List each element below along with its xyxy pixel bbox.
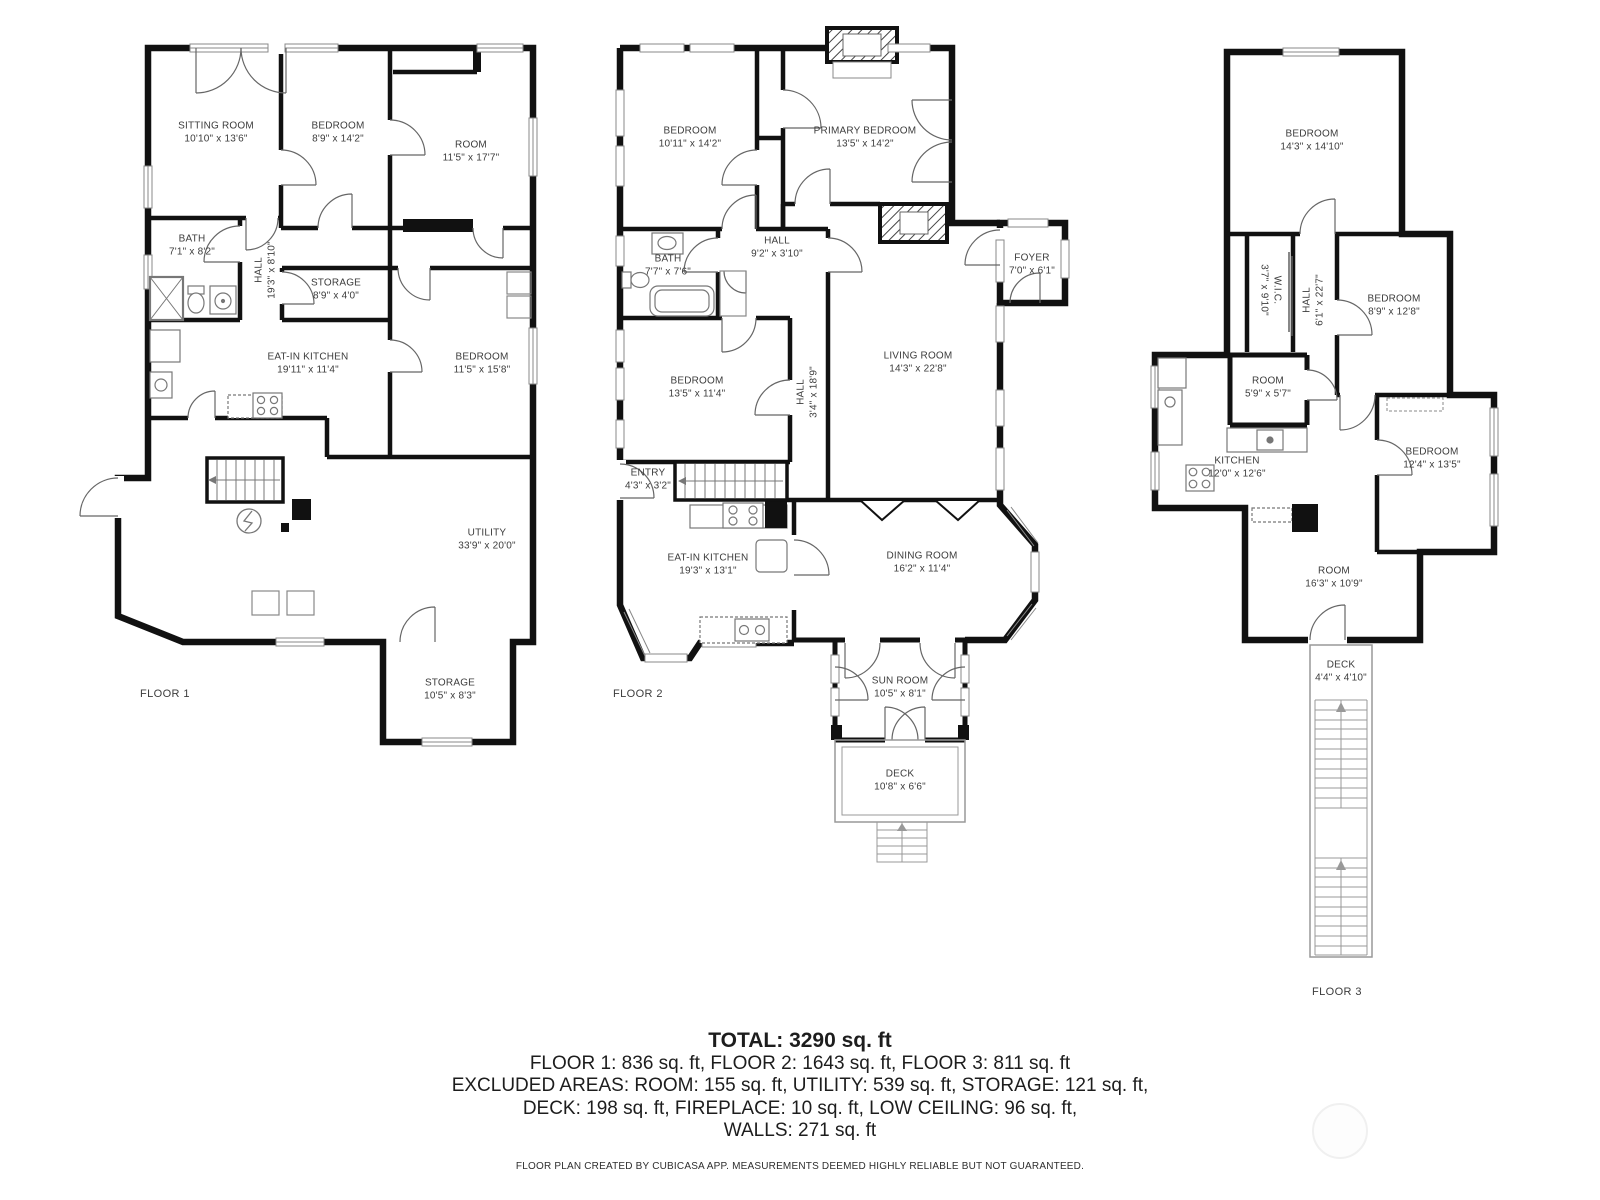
room-label-f3-bedroom-top: BEDROOM14'3" x 14'10" [1280,129,1343,154]
room-label-f1-bath: BATH7'1" x 8'2" [169,234,215,259]
floor-plan-canvas [0,0,1600,1200]
room-label-f2-eat-in-kitchen: EAT-IN KITCHEN19'3" x 13'1" [668,553,749,578]
room-label-f1-storage: STORAGE8'9" x 4'0" [311,278,361,303]
room-label-f3-room: ROOM16'3" x 10'9" [1305,566,1362,591]
disclaimer-text: FLOOR PLAN CREATED BY CUBICASA APP. MEAS… [0,1161,1600,1172]
room-label-living-room: LIVING ROOM14'3" x 22'8" [884,351,953,376]
floor-1-bath-fixtures [150,277,236,320]
floor-2-label: FLOOR 2 [613,688,663,700]
room-label-f3-small-room: ROOM5'9" x 5'7" [1245,376,1291,401]
room-label-sitting-room: SITTING ROOM10'10" x 13'6" [178,121,254,146]
floor-2-bay-seats [860,500,980,520]
room-label-f1-eat-in-kitchen: EAT-IN KITCHEN19'11" x 11'4" [268,352,349,377]
fireplace-hatch [880,204,947,242]
room-label-f1-storage-annex: STORAGE10'5" x 8'3" [424,678,476,703]
room-label-f1-bedroom-top: BEDROOM8'9" x 14'2" [311,121,364,146]
room-label-f3-bedroom-south: BEDROOM12'4" x 13'5" [1403,447,1460,472]
toilet-icon [622,272,631,288]
room-label-f2-deck: DECK10'8" x 6'6" [874,769,926,794]
stove-icon [253,393,282,418]
stove-icon [723,503,763,528]
room-label-f1-hall: HALL19'3" x 8'10" [254,241,279,298]
floor-1-label: FLOOR 1 [140,688,190,700]
room-label-wic: W.I.C.3'7" x 9'10" [1258,264,1283,316]
walls-area-line: WALLS: 271 sq. ft [0,1120,1600,1142]
room-label-dining-room: DINING ROOM16'2" x 11'4" [886,551,957,576]
room-label-f1-room: ROOM11'5" x 17'7" [443,140,500,165]
floor-2-stairs-icon [675,462,787,500]
excluded-areas-line-1: EXCLUDED AREAS: ROOM: 155 sq. ft, UTILIT… [0,1075,1600,1097]
room-label-f2-hall-vertical: HALL3'4" x 18'9" [796,366,821,418]
floor-2-deck [835,740,965,862]
floor-1-door-arcs [80,48,503,642]
floor-3-deck-stairs [1310,645,1372,957]
area-summary: TOTAL: 3290 sq. ft FLOOR 1: 836 sq. ft, … [0,1029,1600,1143]
fridge-icon [1158,358,1186,388]
room-label-f2-hall: HALL9'2" x 3'10" [751,236,803,261]
deck-stairs-icon [1315,700,1367,955]
room-label-entry: ENTRY4'3" x 3'2" [625,468,671,493]
room-label-foyer: FOYER7'0" x 6'1" [1009,253,1055,278]
floor-3-plan [1151,48,1498,957]
chimney-hatch [827,28,897,78]
room-label-f1-bedroom: BEDROOM11'5" x 15'8" [454,352,511,377]
room-label-f3-bedroom-east: BEDROOM8'9" x 12'8" [1367,294,1420,319]
kitchen-sink-icon [1165,397,1175,407]
total-area: TOTAL: 3290 sq. ft [0,1029,1600,1053]
floor-2-hall-closet [720,271,746,316]
room-label-f2-bedroom-top: BEDROOM10'11" x 14'2" [659,126,721,151]
floor-1-kitchen-fixtures [150,330,282,418]
room-label-primary-bedroom: PRIMARY BEDROOM13'5" x 14'2" [814,126,917,151]
floor-1-electrical-panel-icon [237,509,261,533]
room-label-f2-bath: BATH7'7" x 7'6" [645,254,691,279]
floor-3-label: FLOOR 3 [1312,986,1362,998]
room-label-f3-deck: DECK4'4" x 4'10" [1315,660,1367,685]
excluded-areas-line-2: DECK: 198 sq. ft, FIREPLACE: 10 sq. ft, … [0,1098,1600,1120]
room-label-f2-bedroom: BEDROOM13'5" x 11'4" [669,376,726,401]
floor-1-stairs-icon [207,458,283,502]
floor-areas-line: FLOOR 1: 836 sq. ft, FLOOR 2: 1643 sq. f… [0,1053,1600,1075]
floor-3-wall-openings [1308,634,1347,646]
floor-plan-document: SITTING ROOM10'10" x 13'6" BEDROOM8'9" x… [0,0,1600,1200]
room-label-f3-kitchen: KITCHEN12'0" x 12'6" [1208,456,1265,481]
room-label-f1-utility: UTILITY33'9" x 20'0" [458,528,515,553]
room-label-sun-room: SUN ROOM10'5" x 8'1" [872,676,929,701]
room-label-f3-hall: HALL6'1" x 22'7" [1302,274,1327,326]
floor-2-plan [614,28,1069,862]
